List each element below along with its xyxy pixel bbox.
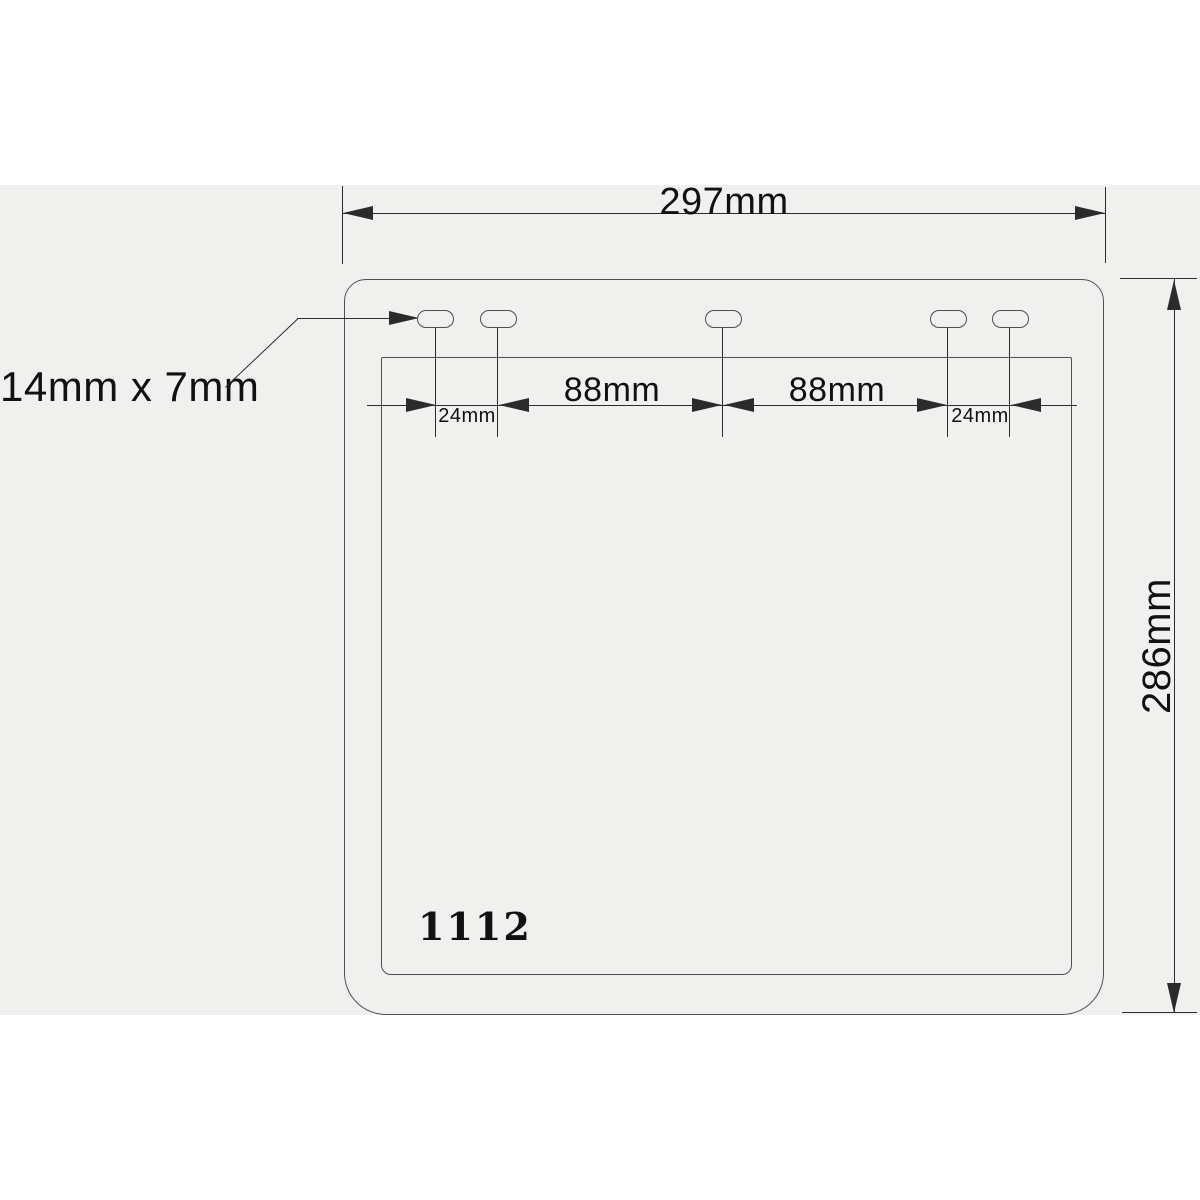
leader-arrowhead-icon bbox=[389, 311, 419, 325]
height-dimension-label: 286mm bbox=[1137, 578, 1177, 714]
slot-hole-2 bbox=[480, 310, 517, 328]
slot-hole-4 bbox=[930, 310, 967, 328]
width-arrowhead-right-icon bbox=[1075, 206, 1105, 220]
slot-hole-3 bbox=[705, 310, 742, 328]
slot-centerline-1 bbox=[435, 328, 436, 437]
offset-right-label: 24mm bbox=[951, 406, 1009, 426]
width-dimension-label: 297mm bbox=[659, 183, 788, 221]
width-arrowhead-left-icon bbox=[343, 206, 373, 220]
spacing-arrowhead-6-icon bbox=[1011, 398, 1041, 412]
height-extension-line-top bbox=[1120, 278, 1197, 279]
leader-line-horizontal bbox=[297, 318, 389, 319]
spacing-arrowhead-1-icon bbox=[406, 398, 436, 412]
height-extension-line-bottom bbox=[1122, 1012, 1197, 1013]
slot-centerline-4 bbox=[947, 328, 948, 437]
slot-hole-5 bbox=[992, 310, 1029, 328]
spacing-arrowhead-4-icon bbox=[724, 398, 754, 412]
slot-centerline-3 bbox=[722, 328, 723, 437]
offset-left-label: 24mm bbox=[438, 406, 496, 426]
spacing-arrowhead-2-icon bbox=[499, 398, 529, 412]
slot-size-label: 14mm x 7mm bbox=[0, 366, 259, 408]
height-arrowhead-down-icon bbox=[1167, 983, 1181, 1013]
span-left-label: 88mm bbox=[564, 373, 660, 407]
span-right-label: 88mm bbox=[789, 373, 885, 407]
part-number-label: 1112 bbox=[418, 908, 532, 946]
inner-panel-outline bbox=[381, 357, 1072, 975]
spacing-arrowhead-5-icon bbox=[917, 398, 947, 412]
spacing-arrowhead-3-icon bbox=[692, 398, 722, 412]
slot-hole-1 bbox=[417, 310, 454, 328]
slot-centerline-5 bbox=[1009, 328, 1010, 437]
width-extension-line-left bbox=[342, 186, 343, 264]
technical-drawing-canvas: 297mm 24mm 88mm 88mm 24mm 286mm 14mm x 7… bbox=[0, 0, 1200, 1200]
slot-centerline-2 bbox=[497, 328, 498, 437]
width-extension-line-right bbox=[1105, 187, 1106, 263]
height-arrowhead-up-icon bbox=[1167, 280, 1181, 310]
